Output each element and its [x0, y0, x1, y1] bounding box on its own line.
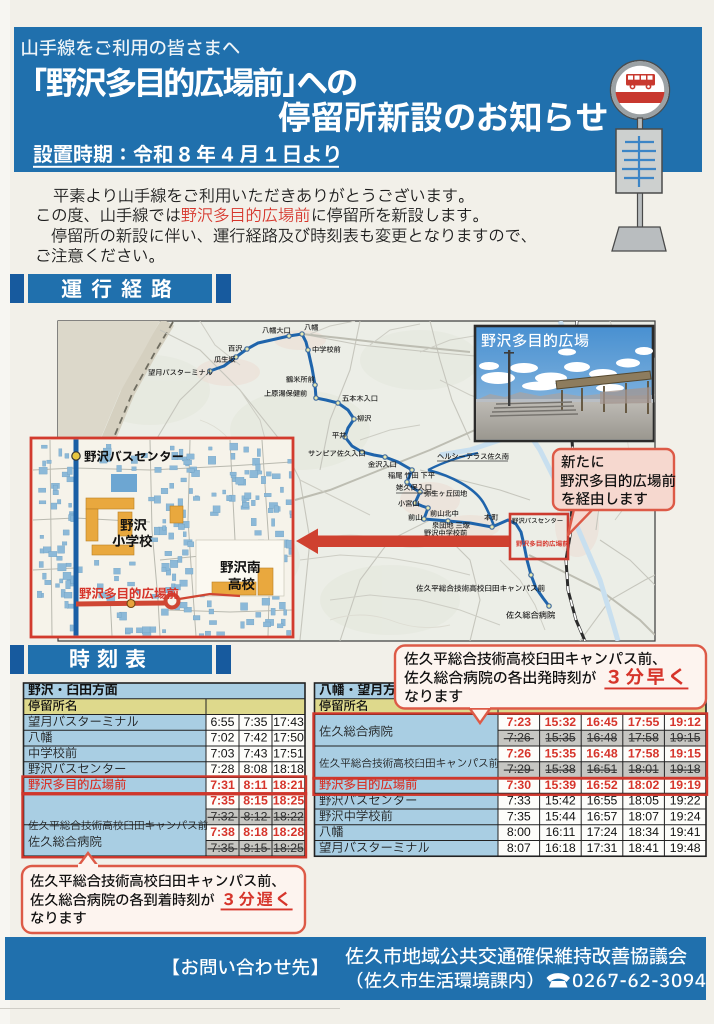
svg-text:7:38: 7:38: [210, 825, 235, 839]
svg-text:18:01: 18:01: [628, 762, 659, 776]
svg-text:8:18: 8:18: [243, 825, 268, 839]
svg-text:19:19: 19:19: [669, 778, 701, 792]
svg-text:7:28: 7:28: [211, 762, 235, 776]
svg-text:19:15: 19:15: [670, 731, 701, 745]
svg-text:8:07: 8:07: [507, 841, 531, 855]
svg-text:18:22: 18:22: [273, 809, 304, 823]
svg-text:19:12: 19:12: [669, 715, 701, 729]
svg-text:7:35: 7:35: [211, 841, 235, 855]
svg-text:7:43: 7:43: [244, 746, 268, 760]
svg-text:8:08: 8:08: [244, 762, 268, 776]
svg-text:18:41: 18:41: [628, 841, 659, 855]
svg-text:19:24: 19:24: [670, 809, 701, 823]
svg-text:15:44: 15:44: [545, 809, 576, 823]
svg-text:7:35: 7:35: [210, 794, 235, 808]
svg-text:7:35: 7:35: [244, 715, 268, 729]
svg-text:8:11: 8:11: [244, 778, 268, 792]
svg-text:18:18: 18:18: [273, 762, 304, 776]
svg-text:16:11: 16:11: [545, 825, 575, 839]
svg-text:15:32: 15:32: [545, 715, 577, 729]
svg-text:19:41: 19:41: [670, 825, 701, 839]
svg-text:18:07: 18:07: [628, 809, 659, 823]
svg-text:16:51: 16:51: [587, 762, 618, 776]
svg-text:8:15: 8:15: [243, 794, 268, 808]
svg-text:17:50: 17:50: [273, 731, 304, 745]
svg-text:7:23: 7:23: [506, 715, 531, 729]
svg-text:16:57: 16:57: [587, 809, 618, 823]
svg-text:7:26: 7:26: [506, 746, 531, 760]
svg-text:7:02: 7:02: [211, 731, 235, 745]
svg-text:7:32: 7:32: [211, 809, 235, 823]
svg-text:18:21: 18:21: [273, 778, 305, 792]
svg-text:7:35: 7:35: [507, 809, 531, 823]
svg-text:16:45: 16:45: [586, 715, 618, 729]
svg-text:15:38: 15:38: [545, 762, 576, 776]
svg-text:7:42: 7:42: [244, 731, 268, 745]
svg-text:16:48: 16:48: [587, 731, 618, 745]
svg-text:18:28: 18:28: [273, 825, 305, 839]
svg-text:18:02: 18:02: [628, 778, 660, 792]
svg-text:16:52: 16:52: [586, 778, 618, 792]
svg-text:15:35: 15:35: [545, 731, 576, 745]
svg-text:17:31: 17:31: [587, 841, 618, 855]
svg-text:8:15: 8:15: [244, 841, 268, 855]
svg-text:7:30: 7:30: [506, 778, 531, 792]
svg-text:17:58: 17:58: [628, 746, 660, 760]
svg-text:8:12: 8:12: [244, 809, 268, 823]
svg-text:17:55: 17:55: [628, 715, 660, 729]
svg-text:15:35: 15:35: [545, 746, 577, 760]
svg-text:16:48: 16:48: [586, 746, 618, 760]
svg-text:17:43: 17:43: [273, 715, 304, 729]
svg-text:7:26: 7:26: [507, 731, 531, 745]
svg-text:17:51: 17:51: [273, 746, 304, 760]
svg-text:18:25: 18:25: [273, 794, 305, 808]
svg-text:7:31: 7:31: [210, 778, 235, 792]
svg-text:17:24: 17:24: [587, 825, 618, 839]
svg-text:16:18: 16:18: [545, 841, 576, 855]
svg-text:15:39: 15:39: [545, 778, 577, 792]
svg-text:7:03: 7:03: [211, 746, 235, 760]
svg-text:18:25: 18:25: [273, 841, 304, 855]
svg-text:19:48: 19:48: [670, 841, 701, 855]
svg-text:19:18: 19:18: [670, 762, 701, 776]
svg-text:18:34: 18:34: [628, 825, 659, 839]
svg-text:17:58: 17:58: [628, 731, 659, 745]
svg-text:7:29: 7:29: [507, 762, 531, 776]
svg-text:19:15: 19:15: [669, 746, 701, 760]
svg-text:8:00: 8:00: [507, 825, 531, 839]
svg-text:6:55: 6:55: [211, 715, 235, 729]
